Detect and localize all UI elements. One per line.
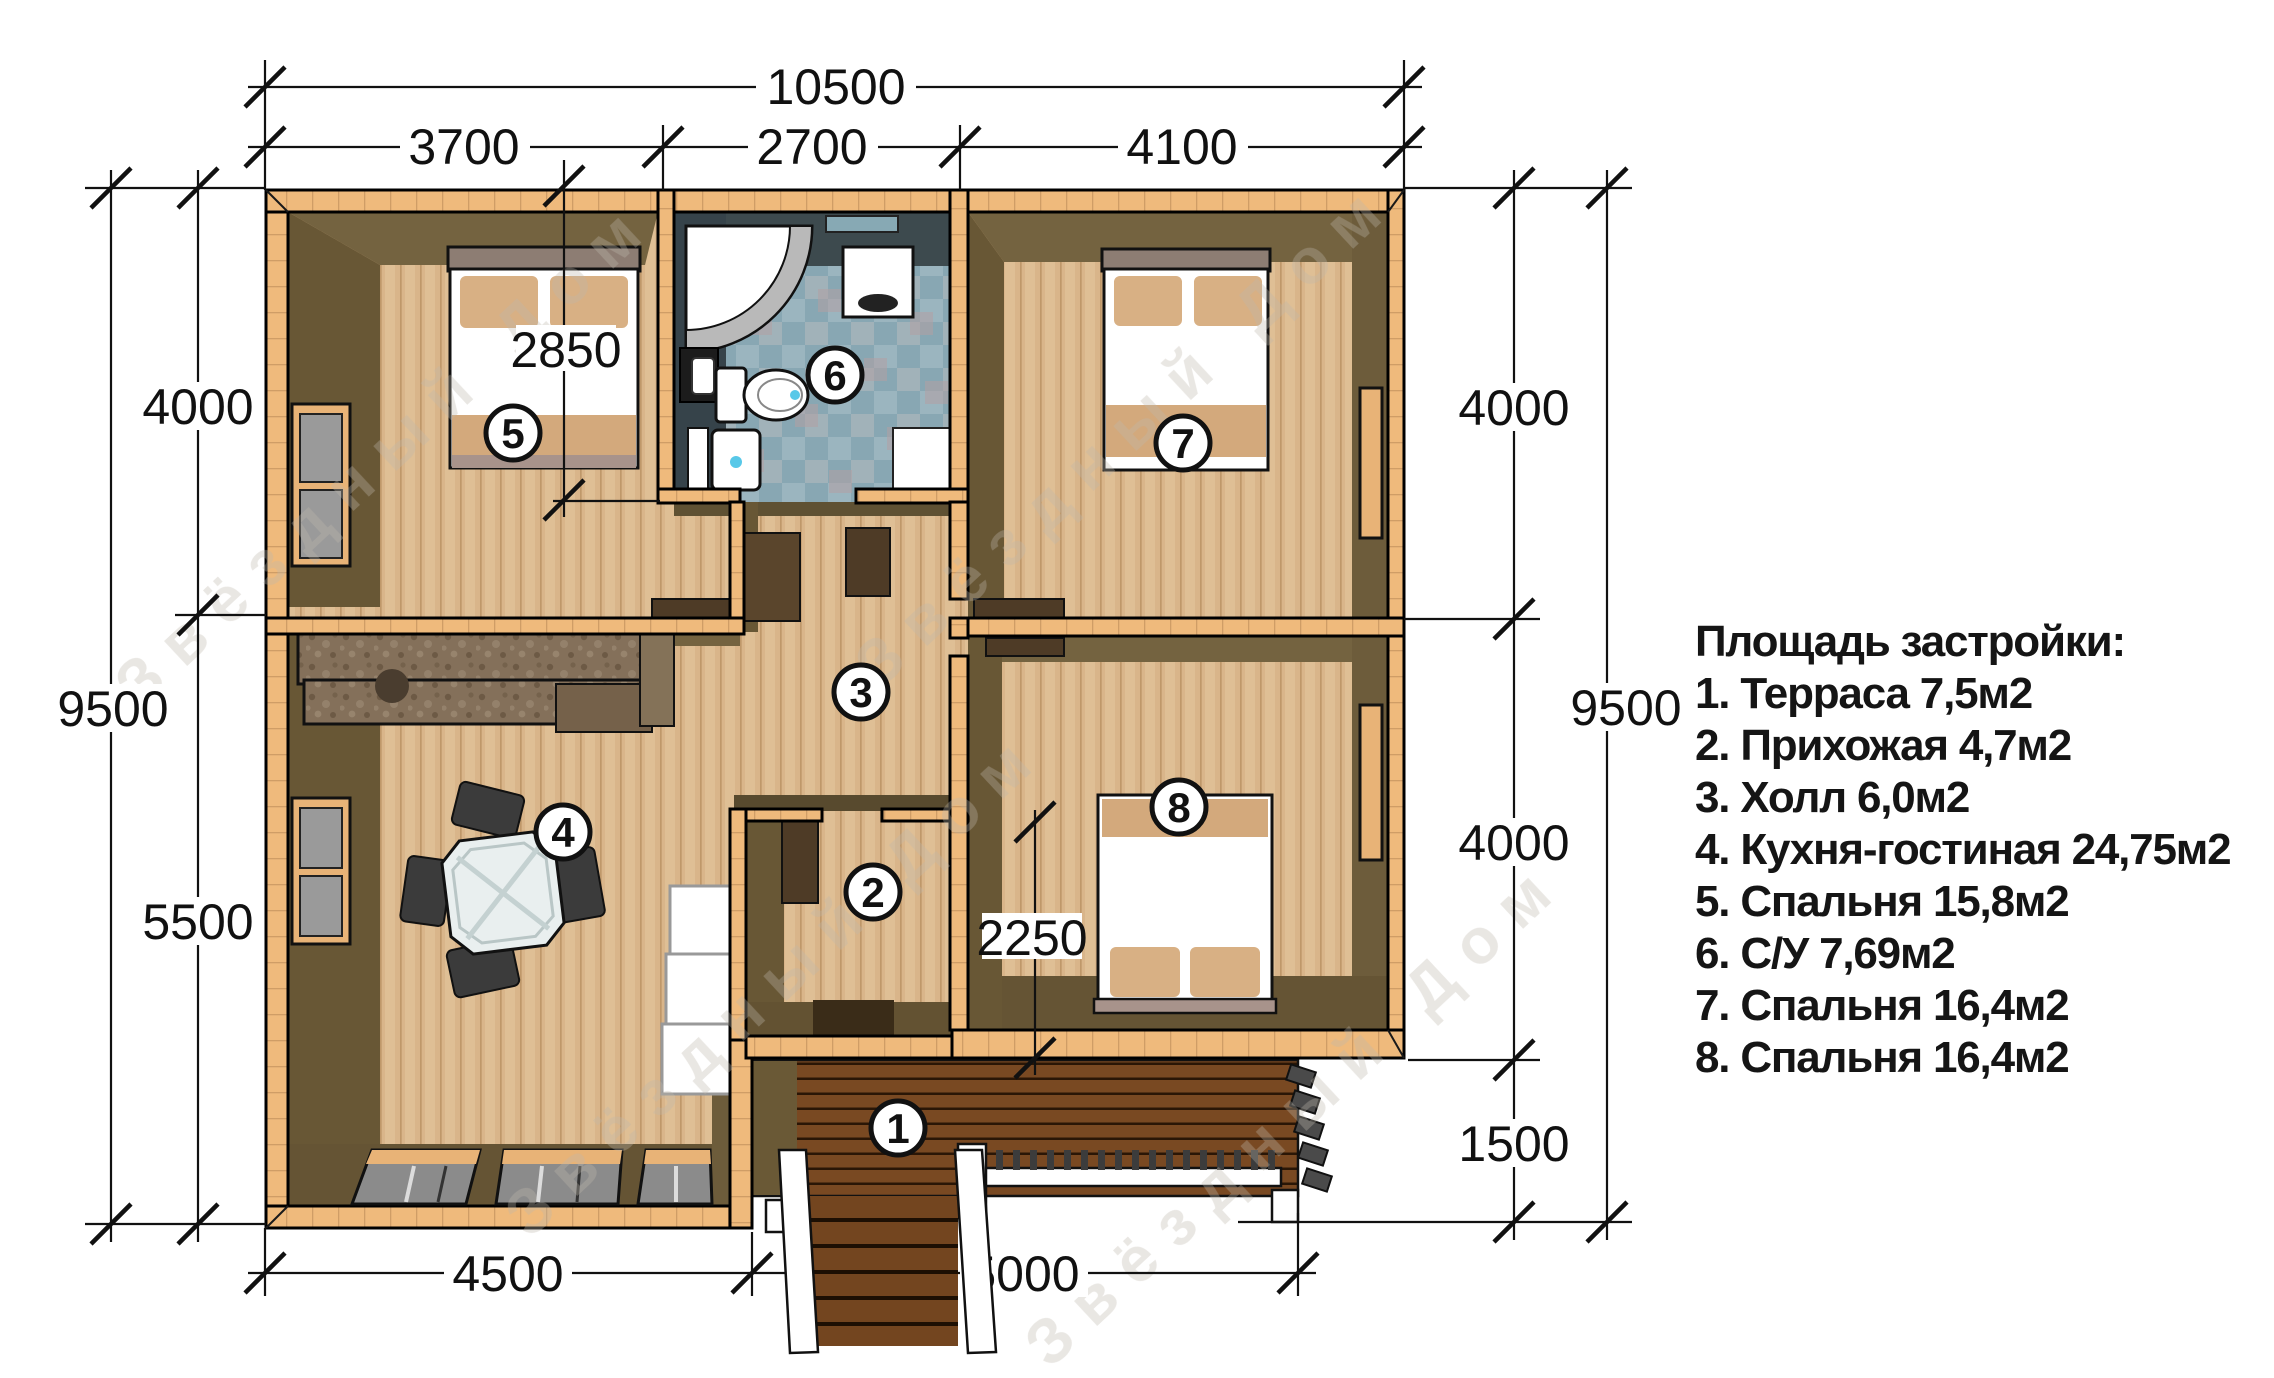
svg-text:4: 4 [551, 809, 575, 856]
svg-text:8: 8 [1167, 784, 1190, 831]
svg-text:2700: 2700 [756, 119, 867, 175]
svg-text:1500: 1500 [1458, 1116, 1569, 1172]
svg-text:1: 1 [886, 1105, 909, 1152]
svg-text:8. Спальня 16,4м2: 8. Спальня 16,4м2 [1695, 1033, 2068, 1082]
svg-text:3. Холл 6,0м2: 3. Холл 6,0м2 [1695, 773, 1969, 822]
svg-text:10500: 10500 [766, 59, 905, 115]
svg-text:4000: 4000 [1458, 815, 1569, 871]
svg-text:5500: 5500 [142, 894, 253, 950]
svg-text:2850: 2850 [510, 322, 621, 378]
svg-text:1. Терраса 7,5м2: 1. Терраса 7,5м2 [1695, 669, 2032, 718]
svg-text:4000: 4000 [1458, 380, 1569, 436]
svg-text:6. С/У 7,69м2: 6. С/У 7,69м2 [1695, 929, 1955, 978]
svg-text:4100: 4100 [1126, 119, 1237, 175]
svg-text:3: 3 [849, 669, 872, 716]
svg-text:5. Спальня 15,8м2: 5. Спальня 15,8м2 [1695, 877, 2068, 926]
svg-text:2: 2 [861, 869, 884, 916]
svg-text:6: 6 [823, 352, 846, 399]
svg-text:7. Спальня 16,4м2: 7. Спальня 16,4м2 [1695, 981, 2068, 1030]
svg-text:Площадь застройки:: Площадь застройки: [1695, 617, 2125, 666]
svg-text:2250: 2250 [976, 910, 1087, 966]
svg-text:5: 5 [501, 410, 524, 457]
svg-text:2. Прихожая 4,7м2: 2. Прихожая 4,7м2 [1695, 721, 2071, 770]
svg-text:4000: 4000 [142, 379, 253, 435]
svg-text:4500: 4500 [452, 1246, 563, 1302]
svg-text:3700: 3700 [408, 119, 519, 175]
svg-text:9500: 9500 [57, 681, 168, 737]
svg-text:9500: 9500 [1570, 680, 1681, 736]
svg-text:7: 7 [1171, 420, 1194, 467]
svg-text:4. Кухня-гостиная 24,75м2: 4. Кухня-гостиная 24,75м2 [1695, 825, 2230, 874]
